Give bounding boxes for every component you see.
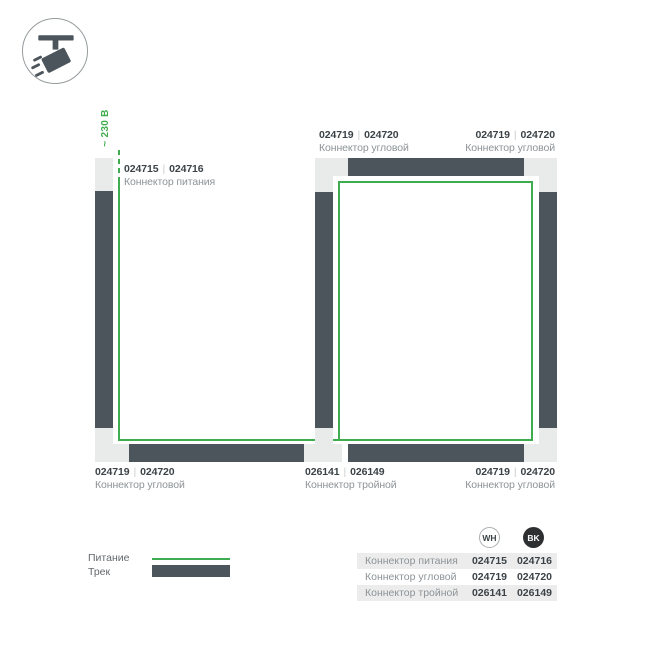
label-corner-connector-top-mid: 024719|024720 Коннектор угловой — [319, 129, 409, 155]
code-separator: | — [162, 163, 165, 175]
row-code-bk: 024716 — [512, 555, 557, 567]
track-segment-right-left-vertical — [315, 192, 333, 428]
corner-connector-top-mid-vert — [315, 158, 333, 192]
code-separator: | — [343, 466, 346, 478]
label-codes: 026141|026149 — [305, 466, 397, 479]
label-name: Коннектор питания — [124, 176, 215, 189]
label-name: Коннектор угловой — [319, 142, 409, 155]
label-name: Коннектор угловой — [465, 479, 555, 492]
label-triple-connector: 026141|026149 Коннектор тройной — [305, 466, 397, 492]
row-name: Коннектор угловой — [357, 571, 467, 583]
legend-power-label: Питание — [88, 552, 129, 565]
row-code-bk: 024720 — [512, 571, 557, 583]
row-name: Коннектор тройной — [357, 587, 467, 599]
label-codes: 024719|024720 — [95, 466, 185, 479]
label-corner-connector-bottom-right: 024719|024720 Коннектор угловой — [465, 466, 555, 492]
track-segment-left-bottom — [129, 444, 305, 462]
corner-connector-bottom-left-horiz — [95, 444, 129, 462]
column-badge-white: WH — [479, 527, 500, 548]
page: ~ 230 В 024715|024716 Коннектор питания … — [0, 0, 650, 650]
code-separator: | — [514, 129, 517, 141]
row-name: Коннектор питания — [357, 555, 467, 567]
label-power-connector: 024715|024716 Коннектор питания — [124, 163, 215, 189]
table-row: Коннектор угловой 024719 024720 — [357, 569, 557, 585]
track-segment-right-top — [348, 158, 525, 176]
code-wh: 024719 — [475, 466, 509, 478]
power-line-loop — [338, 181, 533, 441]
legend-track-label: Трек — [88, 566, 110, 579]
code-wh: 024715 — [124, 163, 158, 175]
legend-track-swatch — [152, 565, 230, 577]
row-code-bk: 026149 — [512, 587, 557, 599]
power-line-vertical — [118, 177, 120, 441]
track-segment-right-bottom — [348, 444, 525, 462]
column-badge-black: BK — [523, 527, 544, 548]
code-separator: | — [357, 129, 360, 141]
track-segment-right-right-vertical — [539, 192, 557, 428]
code-wh: 024719 — [95, 466, 129, 478]
label-name: Коннектор угловой — [95, 479, 185, 492]
code-bk: 024720 — [140, 466, 174, 478]
power-line-horizontal — [118, 439, 340, 441]
label-codes: 024715|024716 — [124, 163, 215, 176]
code-wh: 024719 — [319, 129, 353, 141]
code-bk: 024720 — [521, 129, 555, 141]
track-segment-left-vertical — [95, 191, 113, 428]
row-code-wh: 026141 — [467, 587, 512, 599]
code-bk: 024720 — [521, 466, 555, 478]
code-separator: | — [514, 466, 517, 478]
code-bk: 024716 — [169, 163, 203, 175]
triple-connector-bar — [304, 444, 342, 462]
legend-power-swatch — [152, 558, 230, 560]
table-row: Коннектор питания 024715 024716 — [357, 553, 557, 569]
code-separator: | — [133, 466, 136, 478]
code-bk: 026149 — [350, 466, 384, 478]
label-codes: 024719|024720 — [465, 466, 555, 479]
row-code-wh: 024719 — [467, 571, 512, 583]
track-spotlight-icon — [22, 18, 88, 84]
label-corner-connector-top-right: 024719|024720 Коннектор угловой — [465, 129, 555, 155]
code-bk: 024720 — [364, 129, 398, 141]
code-wh: 024719 — [475, 129, 509, 141]
label-name: Коннектор угловой — [465, 142, 555, 155]
label-codes: 024719|024720 — [319, 129, 409, 142]
power-feed-dashed-line — [118, 150, 120, 177]
label-name: Коннектор тройной — [305, 479, 397, 492]
label-corner-connector-bottom-left: 024719|024720 Коннектор угловой — [95, 466, 185, 492]
corner-connector-bottom-right-vert — [539, 428, 557, 462]
voltage-label: ~ 230 В — [100, 84, 114, 172]
table-row: Коннектор тройной 026141 026149 — [357, 585, 557, 601]
code-wh: 026141 — [305, 466, 339, 478]
label-codes: 024719|024720 — [465, 129, 555, 142]
track-spotlight-glyph — [24, 20, 87, 83]
corner-connector-top-right-vert — [539, 158, 557, 192]
row-code-wh: 024715 — [467, 555, 512, 567]
